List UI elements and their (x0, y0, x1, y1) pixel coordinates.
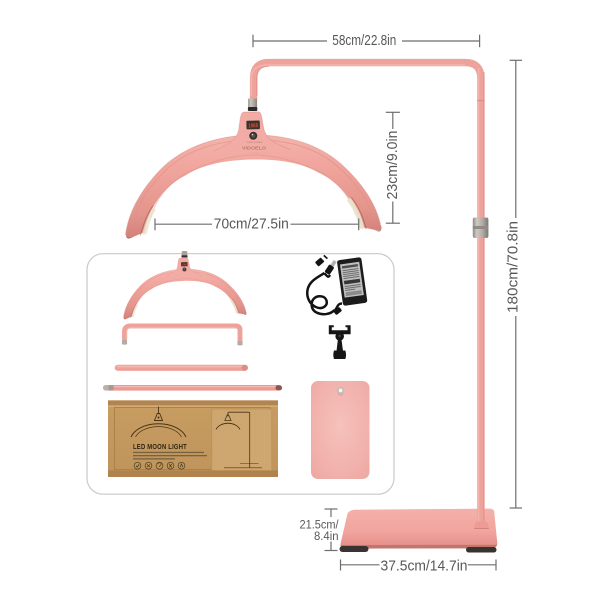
svg-text:58cm/22.8in: 58cm/22.8in (332, 33, 396, 49)
svg-text:180cm/70.8in: 180cm/70.8in (505, 221, 521, 313)
svg-text:moon light: moon light (249, 152, 259, 155)
svg-text:8.4in: 8.4in (314, 529, 339, 543)
svg-text:VIDOELO: VIDOELO (242, 145, 267, 150)
svg-text:SPEED DIMMER: SPEED DIMMER (247, 142, 263, 144)
svg-text:70cm/27.5in: 70cm/27.5in (214, 217, 289, 233)
svg-text:37.5cm/14.7in: 37.5cm/14.7in (381, 558, 468, 574)
svg-text:LED MOON LIGHT: LED MOON LIGHT (133, 442, 187, 451)
svg-text:1988: 1988 (248, 123, 258, 129)
svg-text:23cm/9.0in: 23cm/9.0in (385, 131, 401, 200)
